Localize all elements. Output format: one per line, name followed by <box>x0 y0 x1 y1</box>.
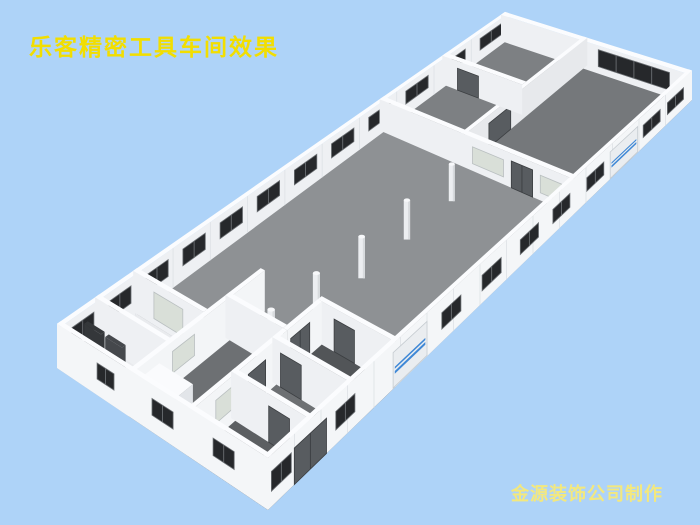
render-canvas: 乐客精密工具车间效果 金源装饰公司制作 <box>0 0 700 525</box>
workshop-3d-render <box>0 0 700 525</box>
column <box>358 235 365 279</box>
column <box>449 162 455 201</box>
studio-credit: 金源装饰公司制作 <box>511 480 663 506</box>
column <box>404 198 410 239</box>
page-title: 乐客精密工具车间效果 <box>29 28 279 62</box>
